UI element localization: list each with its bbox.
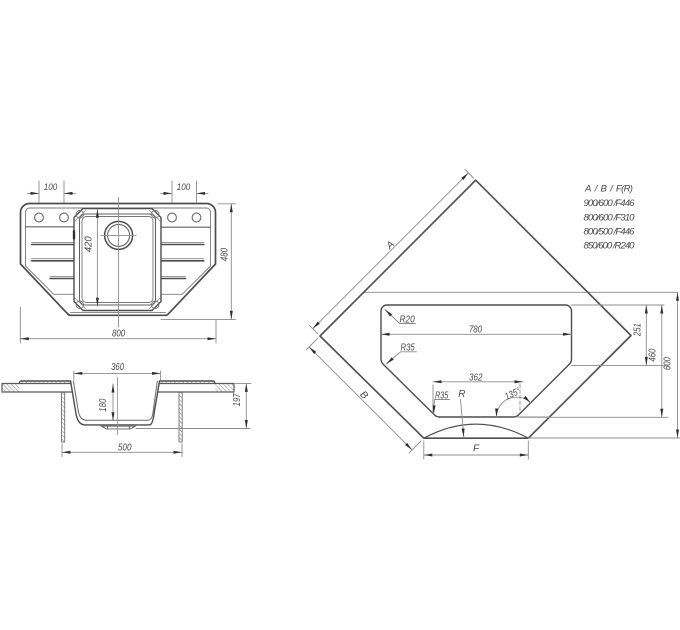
- svg-text:800/500 /F446: 800/500 /F446: [584, 226, 636, 237]
- svg-text:R: R: [458, 389, 465, 400]
- svg-text:900/600 /F446: 900/600 /F446: [584, 198, 636, 209]
- svg-text:850/600 /R240: 850/600 /R240: [584, 241, 636, 252]
- svg-text:800/600 /F310: 800/600 /F310: [584, 212, 636, 223]
- svg-text:A / B / F(R): A / B / F(R): [584, 184, 633, 195]
- svg-text:480: 480: [219, 248, 230, 262]
- svg-text:R35: R35: [435, 390, 449, 401]
- svg-text:180: 180: [98, 398, 109, 411]
- svg-text:800: 800: [112, 329, 126, 340]
- svg-text:251: 251: [633, 323, 644, 337]
- svg-text:460: 460: [648, 348, 659, 361]
- svg-text:R35: R35: [401, 343, 416, 354]
- svg-text:F: F: [473, 444, 480, 455]
- svg-text:360: 360: [111, 362, 124, 373]
- svg-text:500: 500: [118, 443, 132, 454]
- svg-text:100: 100: [44, 182, 58, 192]
- svg-text:780: 780: [469, 324, 483, 335]
- svg-text:600: 600: [663, 357, 674, 370]
- svg-text:197: 197: [232, 393, 243, 406]
- svg-text:100: 100: [177, 182, 191, 192]
- svg-text:R20: R20: [400, 314, 416, 325]
- svg-text:420: 420: [84, 236, 95, 252]
- svg-text:362: 362: [469, 372, 483, 383]
